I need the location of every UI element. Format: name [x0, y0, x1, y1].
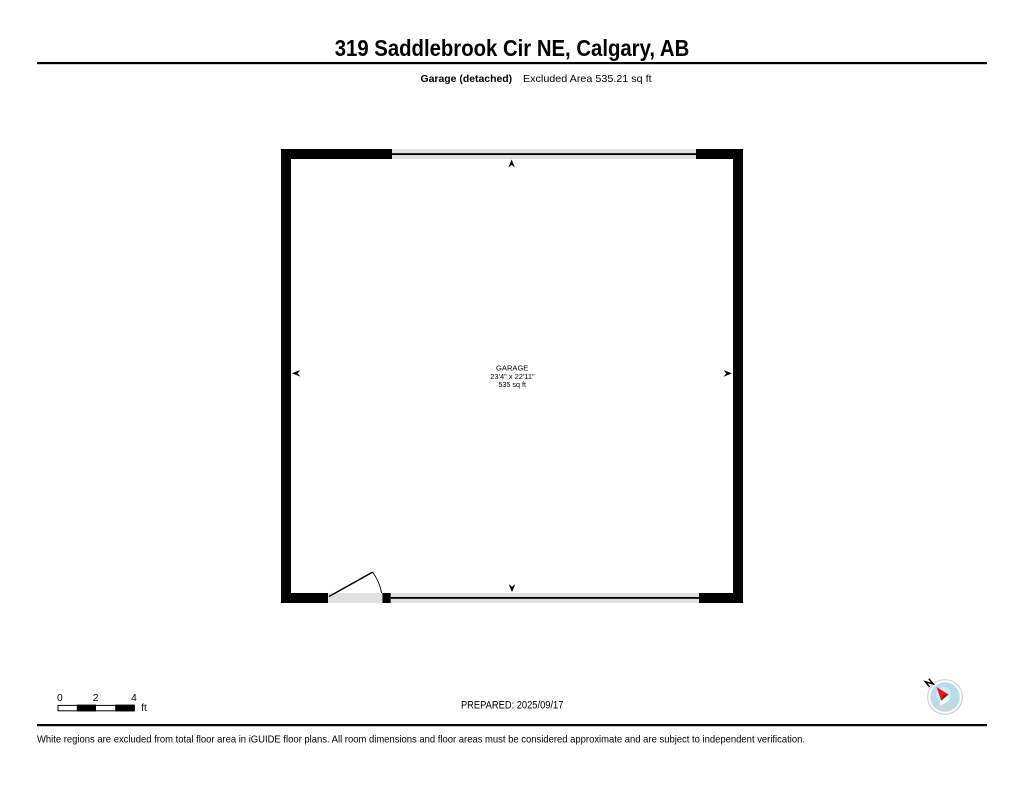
svg-text:4: 4: [131, 693, 137, 704]
svg-text:23'4" x 22'11": 23'4" x 22'11": [490, 374, 535, 381]
svg-text:Garage (detached): Garage (detached): [421, 74, 513, 85]
svg-text:535 sq ft: 535 sq ft: [498, 382, 526, 389]
svg-text:White regions are excluded fro: White regions are excluded from total fl…: [37, 734, 805, 745]
svg-text:0: 0: [57, 693, 63, 704]
svg-text:Excluded Area 535.21 sq ft: Excluded Area 535.21 sq ft: [523, 74, 652, 85]
svg-text:PREPARED: 2025/09/17: PREPARED: 2025/09/17: [461, 700, 564, 712]
svg-text:GARAGE: GARAGE: [496, 365, 529, 372]
svg-text:319 Saddlebrook Cir NE, Calgar: 319 Saddlebrook Cir NE, Calgary, AB: [335, 35, 690, 61]
svg-text:ft: ft: [141, 703, 147, 714]
svg-text:2: 2: [93, 693, 99, 704]
